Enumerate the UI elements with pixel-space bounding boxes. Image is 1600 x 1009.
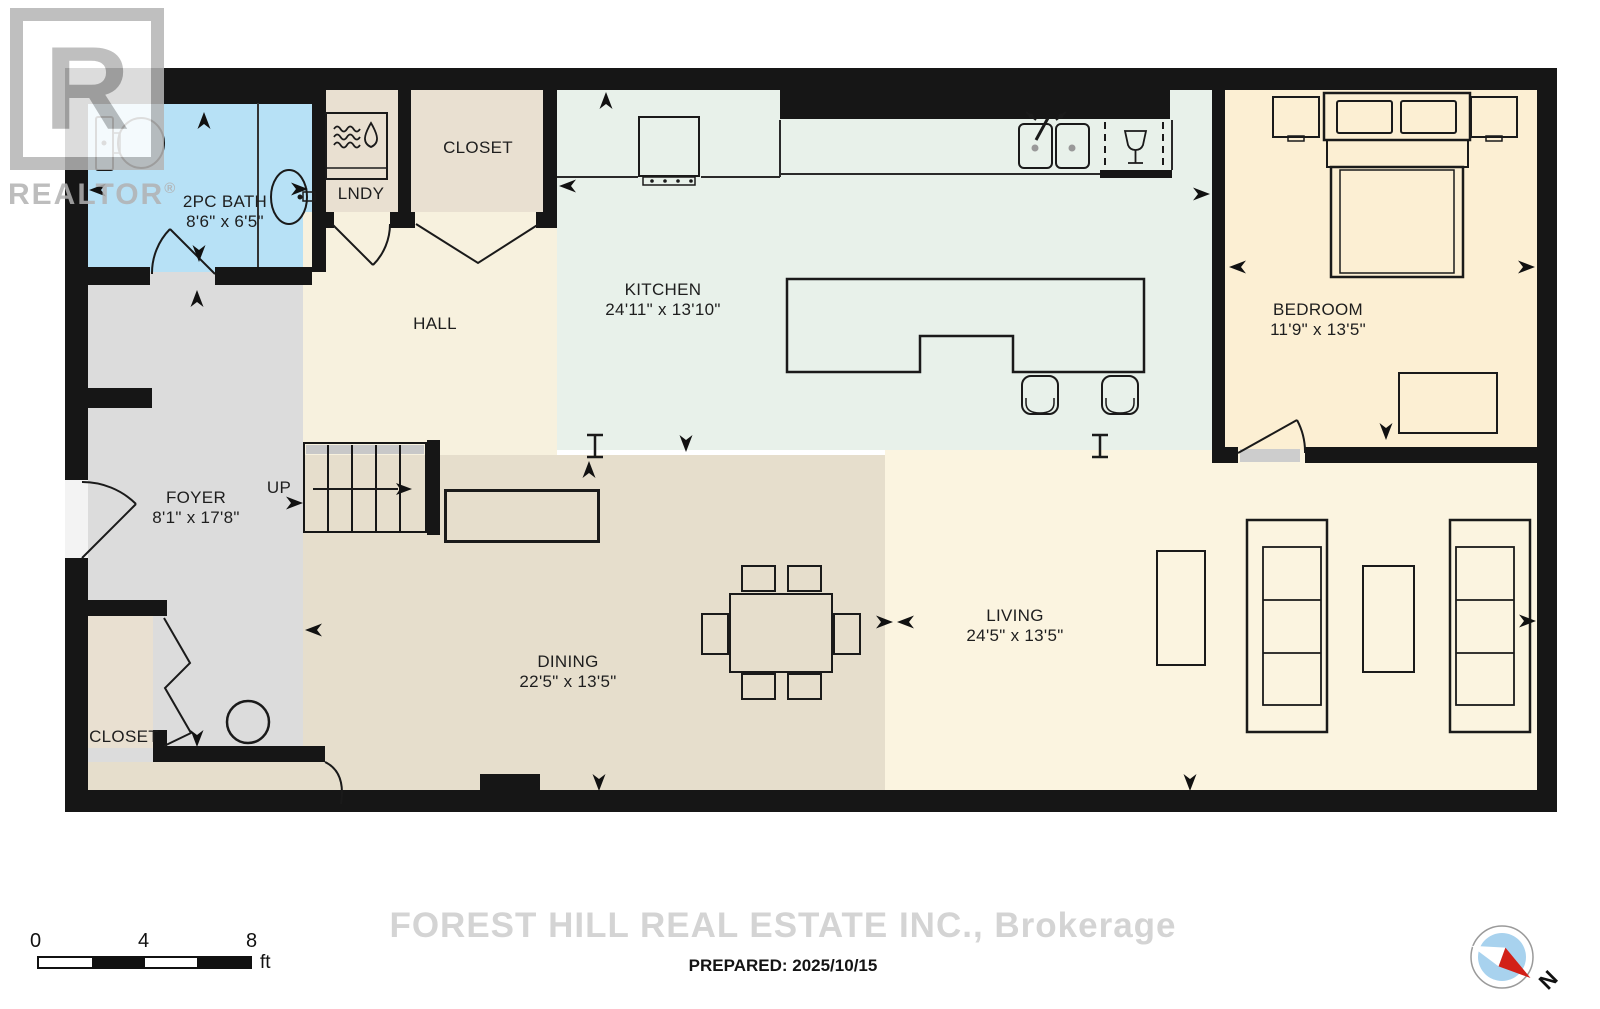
opening-marker: [587, 435, 1108, 457]
scale-bar: 0 4 8 ft: [27, 930, 327, 978]
washer-icon: [327, 123, 386, 168]
stove-knobs: [643, 177, 695, 185]
scale-seg: [92, 958, 145, 967]
prepared-date: PREPARED: 2025/10/15: [183, 956, 1383, 976]
stairs-up-label: UP: [267, 478, 291, 498]
room-label-closet-bottom: CLOSET: [89, 727, 159, 747]
bar-stool: [1022, 376, 1058, 414]
brokerage-watermark: FOREST HILL REAL ESTATE INC., Brokerage: [183, 906, 1383, 946]
kitchen-island: [787, 279, 1144, 372]
floorplan-page: 2PC BATH 8'6" x 6'5" LNDY CLOSET HALL KI…: [0, 0, 1600, 1009]
closet-bottom-bifold: [164, 618, 191, 746]
realtor-text: REALTOR: [8, 178, 164, 211]
kitchen-sink-icon: [1019, 112, 1089, 168]
room-label-kitchen: KITCHEN 24'11" x 13'10": [605, 280, 720, 320]
scale-seg: [197, 958, 250, 967]
realtor-logo-block: R: [10, 8, 164, 170]
sofa: [1247, 520, 1327, 732]
room-label-dining: DINING 22'5" x 13'5": [519, 652, 616, 692]
scale-seg: [39, 958, 92, 967]
room-name: HALL: [413, 314, 457, 334]
room-dims: 22'5" x 13'5": [519, 672, 616, 692]
room-label-laundry: LNDY: [338, 184, 385, 204]
room-label-closet-top: CLOSET: [443, 138, 513, 158]
room-name: FOYER: [152, 488, 239, 508]
room-name: CLOSET: [443, 138, 513, 158]
plan-annotations: [0, 0, 1600, 1009]
room-d: 8'1" x 17'8": [152, 508, 239, 528]
bedroom-door: [1238, 420, 1305, 453]
realtor-watermark: R REALTOR®: [8, 6, 218, 216]
room-dims: 24'5" x 13'5": [966, 626, 1063, 646]
sofa: [1450, 520, 1530, 732]
scale-tick-8: 8: [246, 930, 257, 953]
bath-door: [152, 229, 215, 274]
realtor-logo-text: REALTOR®: [8, 178, 177, 212]
room-dims: 24'11" x 13'10": [605, 300, 720, 320]
realtor-logo-letter: R: [44, 30, 129, 148]
registered-mark: ®: [164, 180, 177, 197]
room-label-living: LIVING 24'5" x 13'5": [966, 606, 1063, 646]
up-text: UP: [267, 478, 291, 498]
front-door: [82, 482, 136, 558]
scale-tick-4: 4: [138, 930, 149, 953]
room-name: LIVING: [966, 606, 1063, 626]
room-name: KITCHEN: [605, 280, 720, 300]
laundry-door: [332, 224, 390, 265]
bar-stool: [1102, 376, 1138, 414]
scale-unit: ft: [260, 952, 271, 974]
closet-bifold-doors: [416, 224, 539, 263]
room-dims: 11'9" x 13'5": [1270, 320, 1366, 340]
bed: [1324, 93, 1470, 277]
room-name: LNDY: [338, 184, 385, 204]
scale-bar-ruler: [37, 956, 252, 969]
room-label-foyer: FOYER 8'1" x 17'8": [152, 488, 239, 528]
foyer-door-swing: [325, 762, 342, 804]
foyer-column: [227, 701, 269, 743]
room-name: CLOSET: [89, 727, 159, 747]
stairs-arrow: [313, 483, 412, 495]
room-name: DINING: [519, 652, 616, 672]
compass-north: N: [1534, 965, 1563, 994]
scale-tick-0: 0: [30, 930, 41, 953]
realtor-logo-inner: R: [23, 21, 151, 157]
compass: N: [1452, 910, 1582, 1006]
room-name: BEDROOM: [1270, 300, 1366, 320]
scale-seg: [145, 958, 198, 967]
bath-sink-icon: [271, 170, 315, 224]
room-label-bedroom: BEDROOM 11'9" x 13'5": [1270, 300, 1366, 340]
room-label-hall: HALL: [413, 314, 457, 334]
dishwasher-icon: [1100, 122, 1172, 178]
